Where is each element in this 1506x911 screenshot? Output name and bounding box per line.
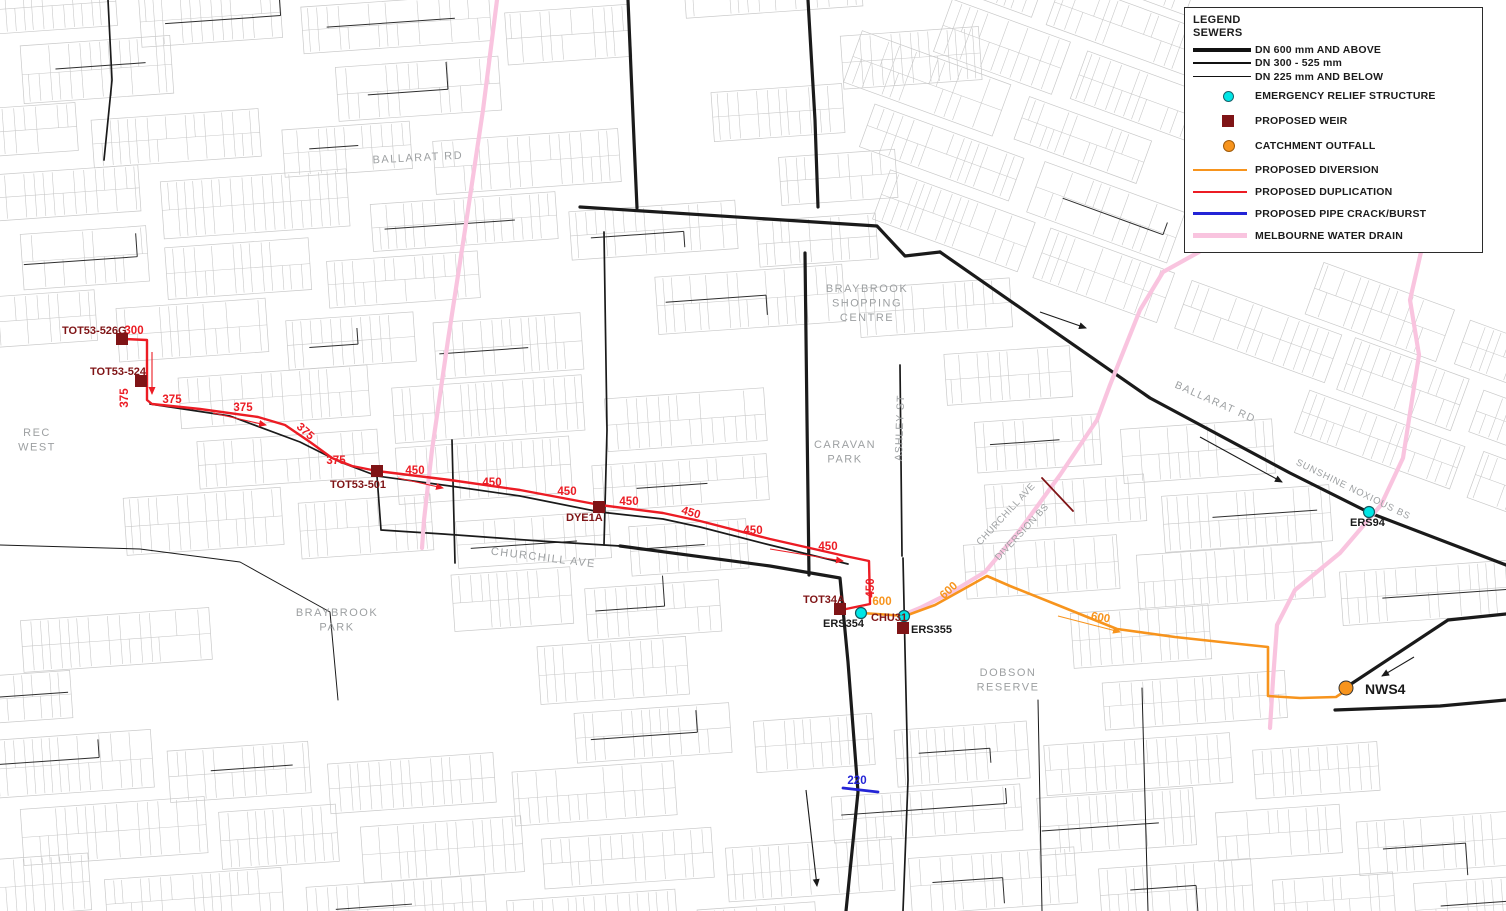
street-label-rec-west: RECWEST <box>18 427 56 454</box>
node-label-TOT34A: TOT34A <box>803 594 845 606</box>
legend-swatch-outfall <box>1193 140 1255 152</box>
legend-label-dn225: DN 225 mm AND BELOW <box>1255 71 1383 83</box>
sewer-line-8 <box>1335 700 1506 710</box>
sewer-line-14 <box>0 545 338 700</box>
street-label-ballarat-rd-west: BALLARAT RD <box>372 150 463 167</box>
node-label-DYE1A: DYE1A <box>566 512 603 524</box>
legend-item-diversion: PROPOSED DIVERSION <box>1193 159 1474 181</box>
legend-swatch-mwdrain <box>1193 233 1255 238</box>
legend-item-weir: PROPOSED WEIR <box>1193 109 1474 134</box>
node-label-TOT53-501: TOT53-501 <box>330 479 386 491</box>
pipe-size-label-red-1: 375 <box>119 388 131 408</box>
legend-item-crackburst: PROPOSED PIPE CRACK/BURST <box>1193 203 1474 225</box>
legend-item-dn225: DN 225 mm AND BELOW <box>1193 70 1474 84</box>
pipe-size-label-red-10: 450 <box>680 505 702 522</box>
legend-swatch-dn225 <box>1193 76 1255 77</box>
legend-swatch-dn300 <box>1193 62 1255 64</box>
legend-label-outfall: CATCHMENT OUTFALL <box>1255 140 1375 152</box>
sewer-line-3 <box>628 0 637 208</box>
legend-item-mwdrain: MELBOURNE WATER DRAIN <box>1193 225 1474 247</box>
node-label-ERS94: ERS94 <box>1350 517 1386 529</box>
legend-label-duplication: PROPOSED DUPLICATION <box>1255 186 1392 198</box>
legend-label-ers: EMERGENCY RELIEF STRUCTURE <box>1255 90 1436 102</box>
pipe-size-label-red-12: 450 <box>818 541 837 553</box>
mw-drain-central <box>908 252 1199 613</box>
ers-marker-ERS94 <box>1364 507 1375 518</box>
node-label-ERS355: ERS355 <box>911 624 952 636</box>
legend-title: LEGEND <box>1193 14 1474 27</box>
node-label-CHU31: CHU31 <box>871 612 907 624</box>
proposed-pipe-crack-burst <box>843 788 878 792</box>
legend-label-mwdrain: MELBOURNE WATER DRAIN <box>1255 230 1403 242</box>
node-label-TOT53-524: TOT53-524 <box>90 366 147 378</box>
street-label-sunshine-noxious-bs: SUNSHINE NOXIOUS BS <box>1294 457 1412 522</box>
sewer-line-11 <box>452 440 455 563</box>
street-label-churchill-ave: CHURCHILL AVE <box>490 546 596 571</box>
legend-item-ers: EMERGENCY RELIEF STRUCTURE <box>1193 84 1474 109</box>
sewer-line-12 <box>604 232 607 545</box>
legend-label-diversion: PROPOSED DIVERSION <box>1255 164 1379 176</box>
arrow-layer <box>152 312 1414 886</box>
pipe-label-layer: 3003753753753753754504504504504504504504… <box>119 325 1111 787</box>
legend-subtitle: SEWERS <box>1193 27 1474 40</box>
legend-label-dn300: DN 300 - 525 mm <box>1255 57 1342 69</box>
node-label-NWS4: NWS4 <box>1365 681 1406 697</box>
pipe-size-label-red-5: 375 <box>326 455 346 467</box>
pipe-size-label-red-2: 375 <box>162 394 182 406</box>
legend-label-crackburst: PROPOSED PIPE CRACK/BURST <box>1255 208 1426 220</box>
pipe-size-label-blue-17: 220 <box>847 775 866 787</box>
node-label-ERS354: ERS354 <box>823 618 865 630</box>
pipe-size-label-red-8: 450 <box>557 486 576 498</box>
street-label-caravan-park: CARAVANPARK <box>814 439 876 466</box>
outfall-marker-NWS4 <box>1339 681 1353 695</box>
legend-label-dn600: DN 600 mm AND ABOVE <box>1255 44 1381 56</box>
pipe-size-label-red-7: 450 <box>482 477 501 489</box>
street-label-dobson-reserve: DOBSONRESERVE <box>977 667 1040 694</box>
legend-rows: DN 600 mm AND ABOVEDN 300 - 525 mmDN 225… <box>1193 43 1474 247</box>
weir-marker-TOT53-501 <box>371 465 383 477</box>
route-layer <box>124 339 1345 792</box>
legend-item-duplication: PROPOSED DUPLICATION <box>1193 181 1474 203</box>
legend-swatch-diversion <box>1193 169 1255 171</box>
pipe-size-label-red-3: 375 <box>233 402 253 414</box>
legend-item-outfall: CATCHMENT OUTFALL <box>1193 134 1474 159</box>
sewer-line-4 <box>805 253 809 575</box>
legend-box: LEGEND SEWERS DN 600 mm AND ABOVEDN 300 … <box>1184 7 1483 253</box>
ers-marker-ERS354 <box>856 608 867 619</box>
street-label-ashley-st: ASHLEY ST <box>893 394 907 461</box>
sewer-line-16 <box>1038 700 1042 911</box>
sewer-line-7 <box>1348 614 1506 686</box>
legend-item-dn300: DN 300 - 525 mm <box>1193 57 1474 71</box>
legend-swatch-dn600 <box>1193 48 1255 52</box>
pipe-size-label-orange-14: 600 <box>872 596 891 608</box>
legend-item-dn600: DN 600 mm AND ABOVE <box>1193 43 1474 57</box>
legend-label-weir: PROPOSED WEIR <box>1255 115 1347 127</box>
legend-swatch-crackburst <box>1193 212 1255 215</box>
flow-arrow-black-2 <box>806 790 817 886</box>
street-label-braybrook-park: BRAYBROOKPARK <box>296 607 378 634</box>
pipe-size-label-red-13: 450 <box>865 578 877 597</box>
legend-swatch-ers <box>1193 91 1255 102</box>
pipe-size-label-red-4: 375 <box>294 421 317 443</box>
proposed-duplication <box>124 339 870 609</box>
pipe-size-label-red-6: 450 <box>405 465 424 477</box>
legend-swatch-duplication <box>1193 191 1255 193</box>
legend-swatch-weir <box>1193 115 1255 127</box>
pipe-size-label-red-11: 450 <box>743 525 762 537</box>
map-stage: BALLARAT RDRECWESTBRAYBROOKSHOPPINGCENTR… <box>0 0 1506 911</box>
node-label-TOT53-526G: TOT53-526G <box>62 325 127 337</box>
pipe-size-label-red-9: 450 <box>619 496 638 508</box>
pipe-size-label-orange-16: 600 <box>1090 610 1111 625</box>
street-label-churchill-ave-bs: CHURCHILL AVE <box>975 481 1038 548</box>
